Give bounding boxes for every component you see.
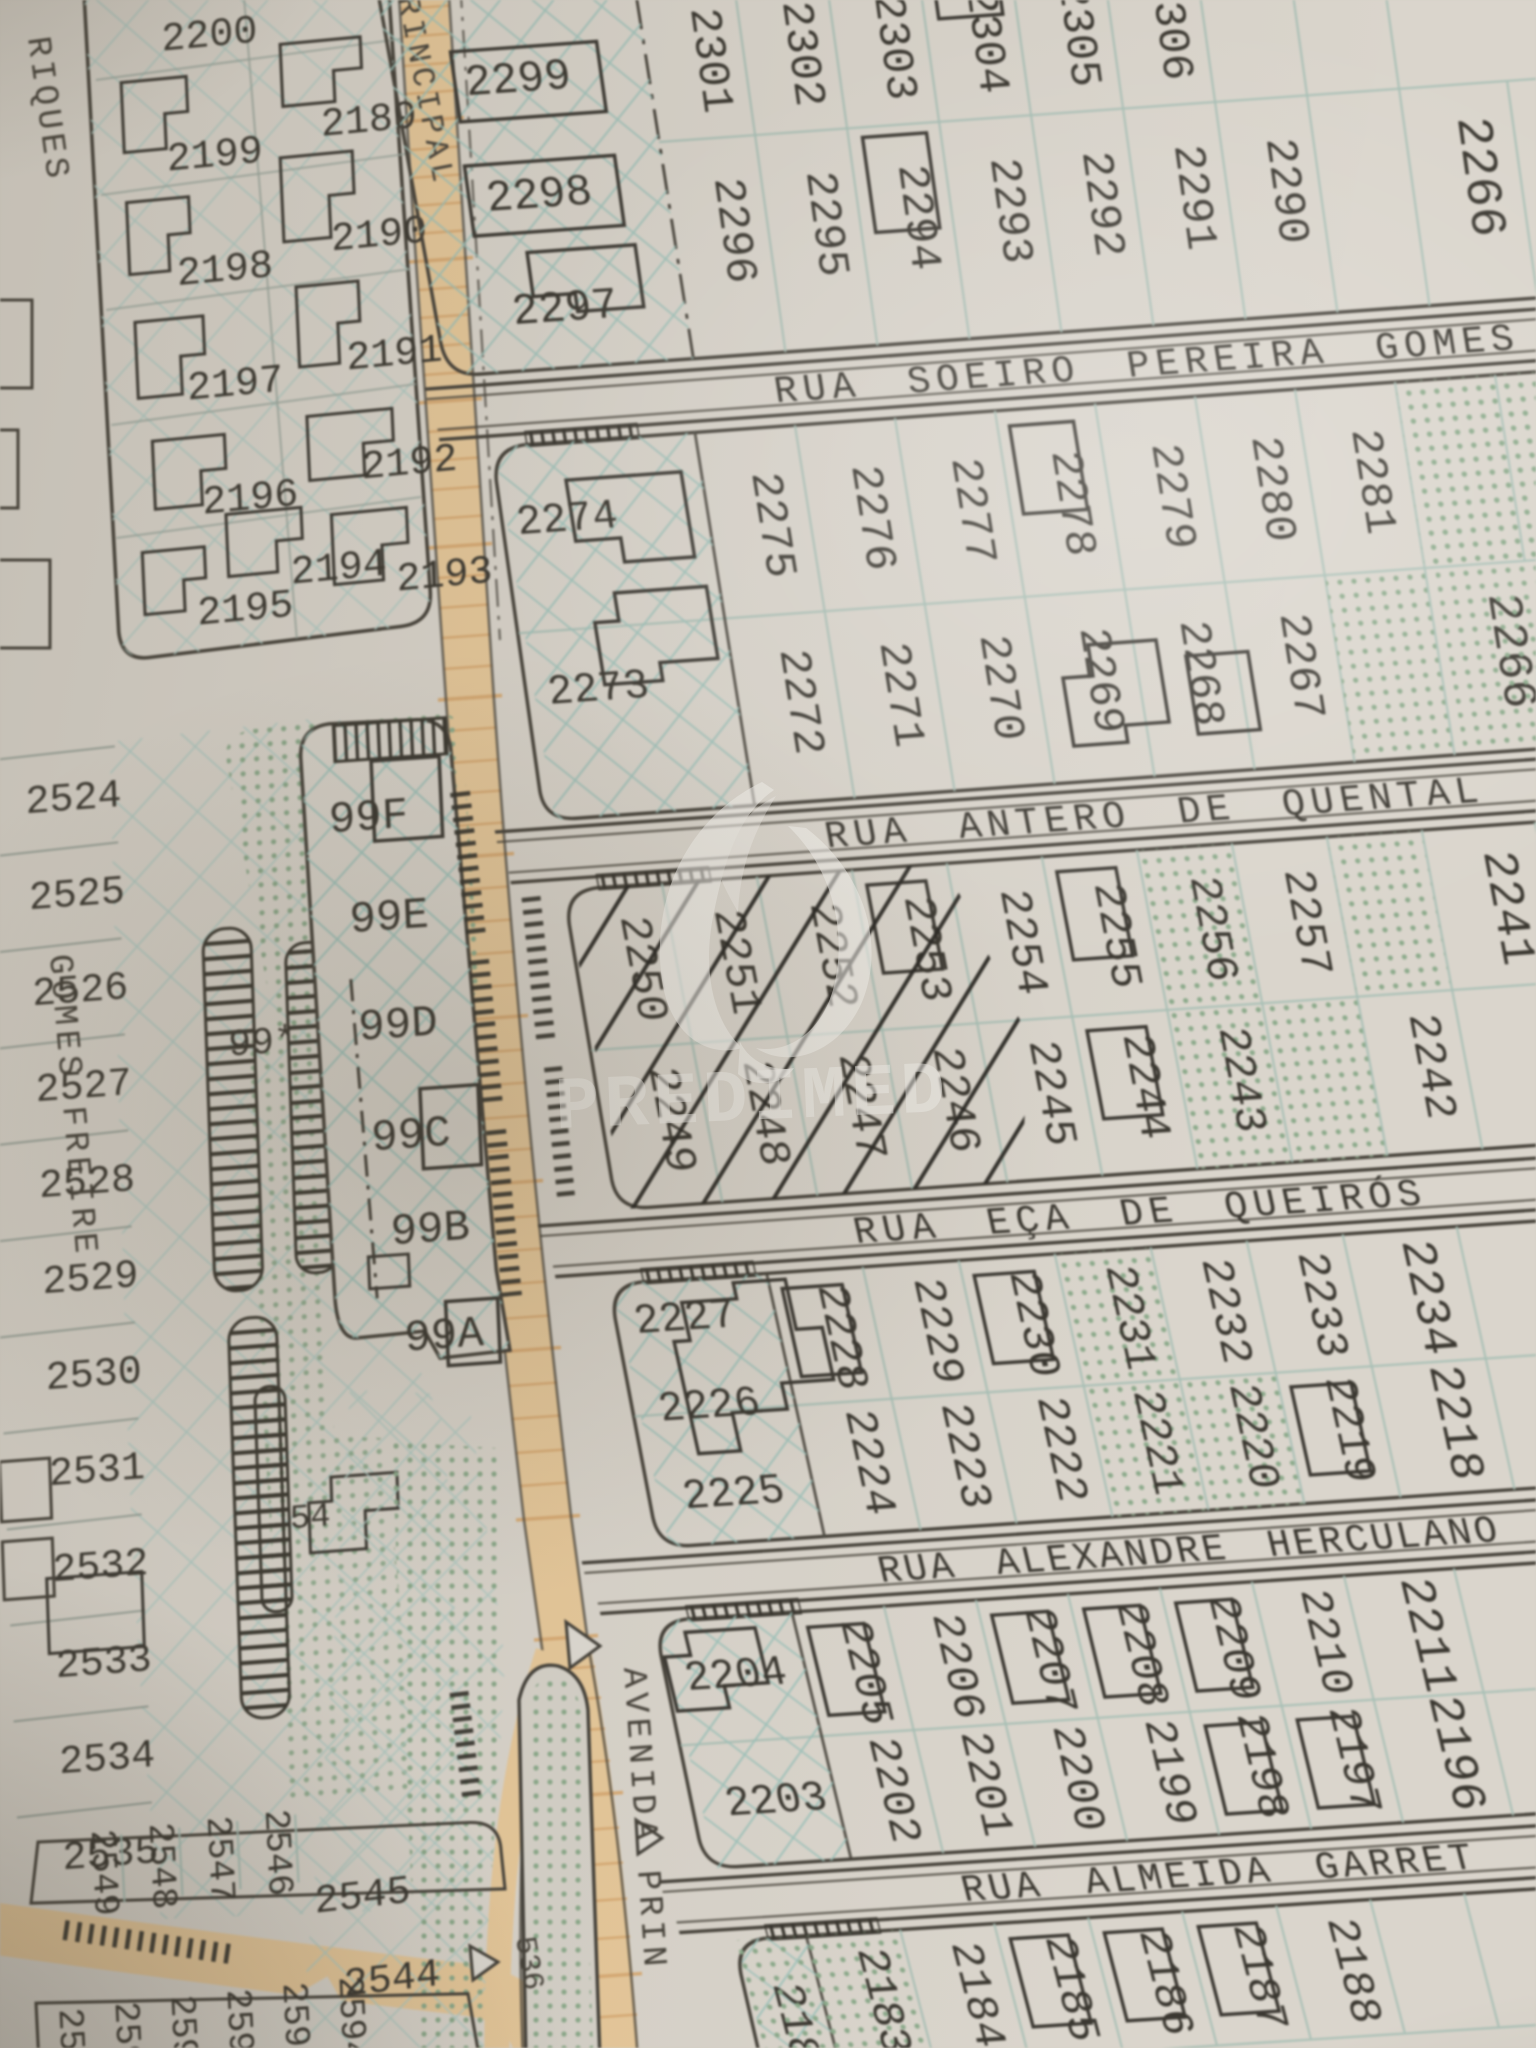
svg-text:PREDIMED: PREDIMED xyxy=(553,1050,952,1151)
